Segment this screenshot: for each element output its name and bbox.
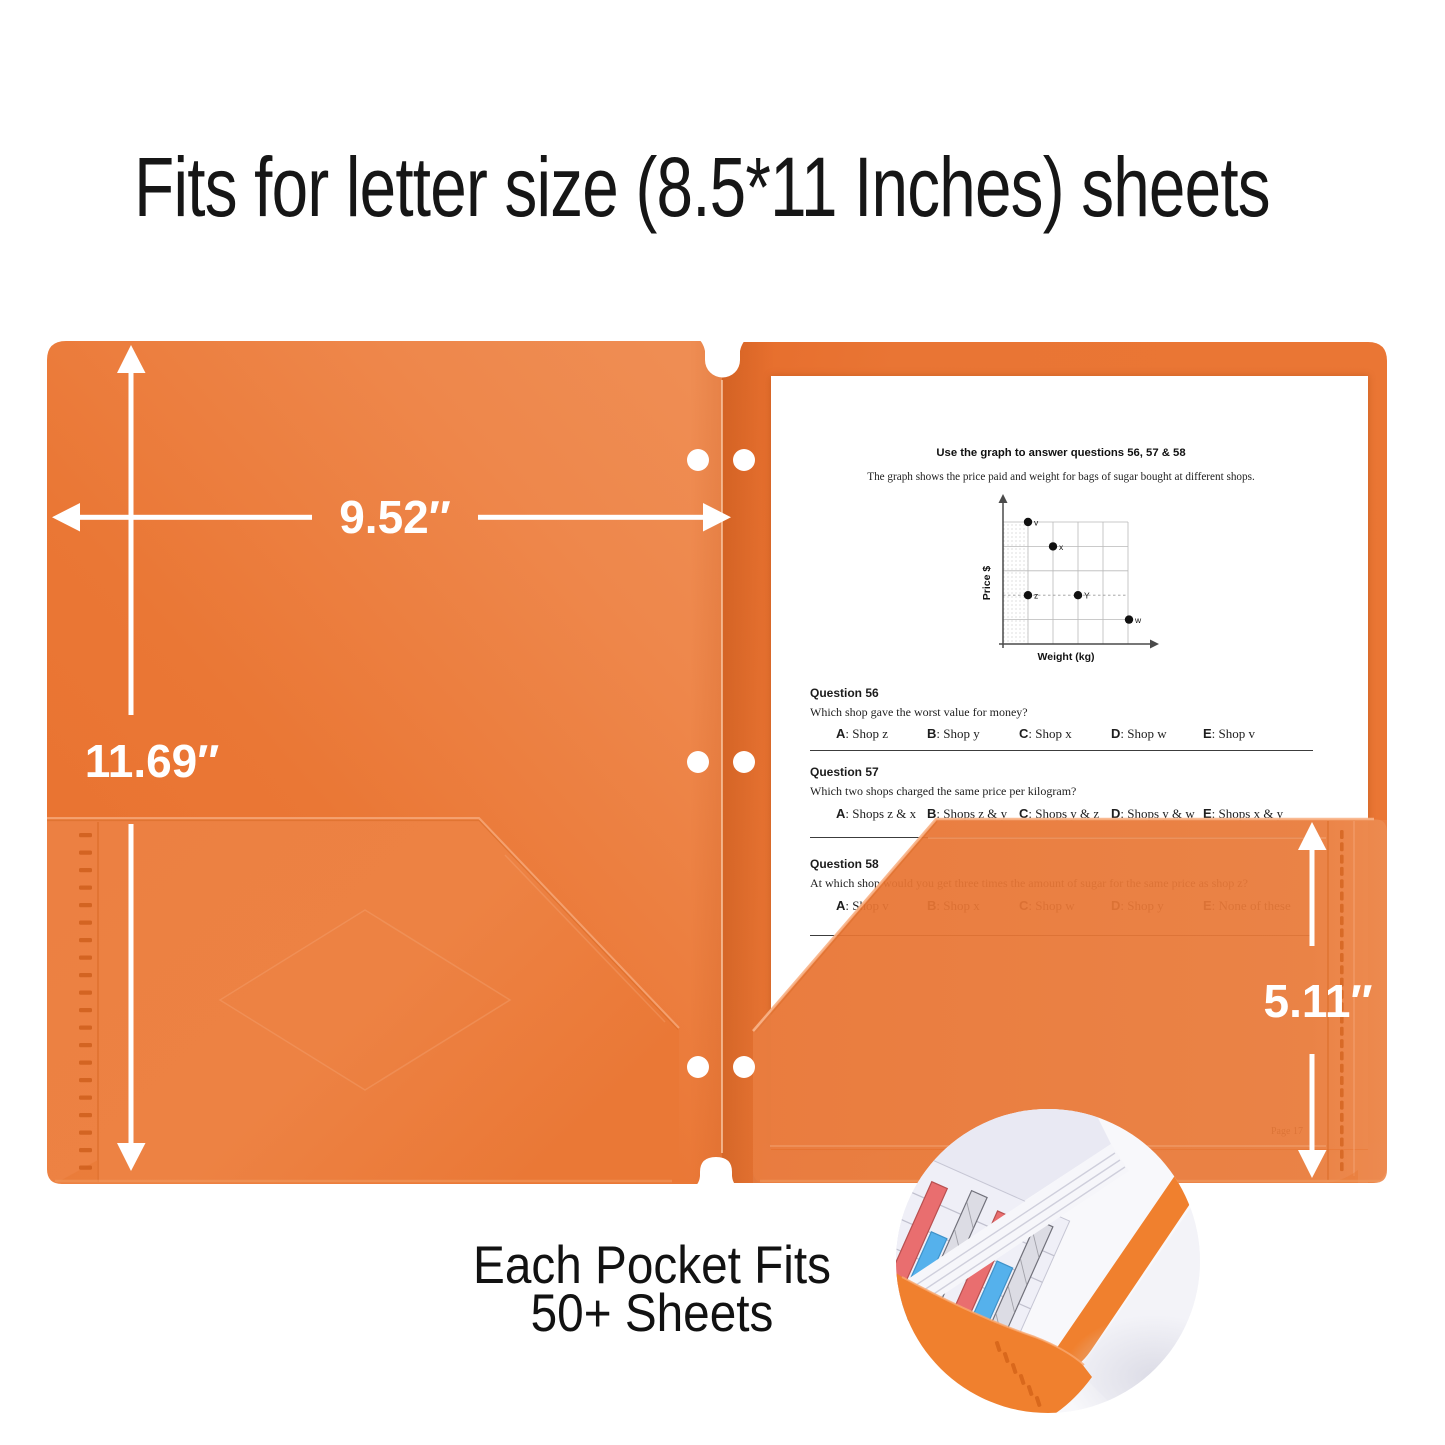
svg-text:9.52″: 9.52″ [339,491,451,543]
svg-text:5.11″: 5.11″ [1263,975,1372,1027]
svg-text:11.69″: 11.69″ [85,735,220,787]
